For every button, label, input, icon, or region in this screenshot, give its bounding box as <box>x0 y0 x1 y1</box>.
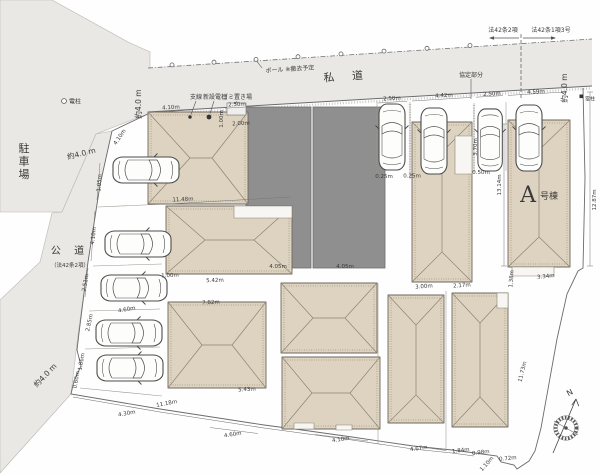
dimension-label: 0.98m <box>472 449 490 457</box>
private-road-area <box>148 39 592 112</box>
building-lower-left <box>168 302 266 388</box>
neighbor-building-right <box>313 107 385 268</box>
dimension-label: 4.67m <box>410 445 428 453</box>
dimension-label: 1.00m <box>161 273 179 280</box>
building-lower-center-lower <box>282 357 380 430</box>
dimension-label: 4.10m <box>90 227 98 245</box>
dimension-label: 2.17m <box>453 282 471 289</box>
arrow-left-icon <box>489 36 494 39</box>
north-arrow-icon <box>572 399 579 406</box>
road-law-right-label: 法42条1項3号 <box>531 26 570 34</box>
building-step <box>294 423 314 429</box>
dimension-label: 11.48m <box>172 196 193 203</box>
parking-lot-label: 駐車場 <box>19 141 30 181</box>
compass-north-label: N <box>565 387 575 398</box>
compass-rose <box>553 399 579 453</box>
dimension-label: 3.70m <box>473 138 479 156</box>
dimension-label: 12.87m <box>592 189 598 210</box>
dimension-label: 0.25m <box>403 174 421 180</box>
utility-pole-right-icon <box>580 95 584 99</box>
dimension-label: 2.50m <box>228 102 246 109</box>
dimension-label: 4.10m <box>113 128 128 146</box>
arrow-right-icon <box>551 36 556 39</box>
dimension-label: 4.10m <box>332 436 350 444</box>
dimension-label: 4.30m <box>118 410 136 419</box>
building-a-suffix: 号棟 <box>540 190 558 202</box>
utility-pole-left-label: 電柱 <box>69 98 81 106</box>
building-lower-center-upper <box>281 283 377 353</box>
road-width-top-right: 約4.0 m <box>559 73 569 102</box>
agreement-part-label: 協定部分 <box>459 71 483 79</box>
dimension-label: 2.85m <box>85 314 95 332</box>
public-road-label: 公 道 <box>51 244 89 257</box>
dimension-label: 1.84m <box>452 447 470 455</box>
dimension-label: 4.60m <box>118 306 136 315</box>
dimension-label: 1.05m <box>96 174 104 192</box>
utility-pole-left-icon <box>62 99 67 104</box>
dimension-label: 5.42m <box>206 278 224 285</box>
dimension-label: 11.73m <box>518 361 529 383</box>
road-width-top-left: 約4.0 m <box>133 89 143 118</box>
dimension-label: 4.05m <box>336 264 354 270</box>
car-icon <box>475 109 506 171</box>
car-icon <box>97 352 163 385</box>
dimension-label: 2.50m <box>483 91 501 98</box>
car-icon <box>376 104 409 170</box>
car-icon <box>101 272 167 305</box>
garbage-area-label: ゴミ置き場 <box>222 93 252 101</box>
site-plan-page: 駐車場私 道公 道（法42条2項）A号棟法42条2項法42条1項3号約4.0 m… <box>0 0 600 475</box>
dimension-label: 0.60m <box>73 371 82 389</box>
guy-wire-dot <box>188 115 191 118</box>
dimension-label: 11.18m <box>156 399 178 409</box>
dimension-label: 1.10m <box>479 456 495 473</box>
dimension-label: 0.25m <box>375 174 393 180</box>
car-icon <box>105 228 171 261</box>
new-pole-dot <box>207 115 212 120</box>
building-a-letter: A <box>519 183 537 208</box>
dimension-label: 3.00m <box>415 283 433 290</box>
dimension-label: 4.10m <box>162 105 180 112</box>
dimension-label: 3.34m <box>537 273 555 281</box>
building-notch <box>497 293 508 308</box>
dimension-label: 4.59m <box>527 89 545 96</box>
car-icon <box>96 317 162 350</box>
guy-wire-label: 支線 <box>190 93 202 101</box>
dimension-label: 2.00m <box>232 121 250 128</box>
building-annex <box>455 136 472 174</box>
dimension-label: 1.00m <box>219 110 225 128</box>
car-icon <box>418 108 451 174</box>
dimension-label: 0.50m <box>472 170 490 176</box>
building-lower-right <box>452 293 508 427</box>
dimension-label: 5.43m <box>238 387 256 394</box>
dimension-label: 0.72m <box>499 455 517 463</box>
dimension-label: 1.38m <box>508 270 516 288</box>
dimension-label: 4.42m <box>435 93 453 100</box>
site-plan-drawing: 駐車場私 道公 道（法42条2項）A号棟法42条2項法42条1項3号約4.0 m… <box>0 0 600 475</box>
car-icon <box>113 154 179 187</box>
car-icon <box>513 105 546 171</box>
dimension-label: 13.14m <box>497 174 503 195</box>
dimension-label: 4.05m <box>269 264 287 270</box>
public-road-note: （法42条2項） <box>51 261 89 269</box>
dimension-label: 7.82m <box>202 300 220 307</box>
dimension-label: 2.50m <box>383 96 401 103</box>
building-step <box>336 425 352 430</box>
building-notch <box>234 206 292 218</box>
dimension-label: 4.60m <box>224 431 242 440</box>
utility-pole-right-label: 電柱 <box>585 96 595 103</box>
dimension-label: 1.86m <box>78 353 87 371</box>
road-law-left-label: 法42条2項 <box>488 26 517 34</box>
building-lower-right-middle <box>388 295 444 423</box>
